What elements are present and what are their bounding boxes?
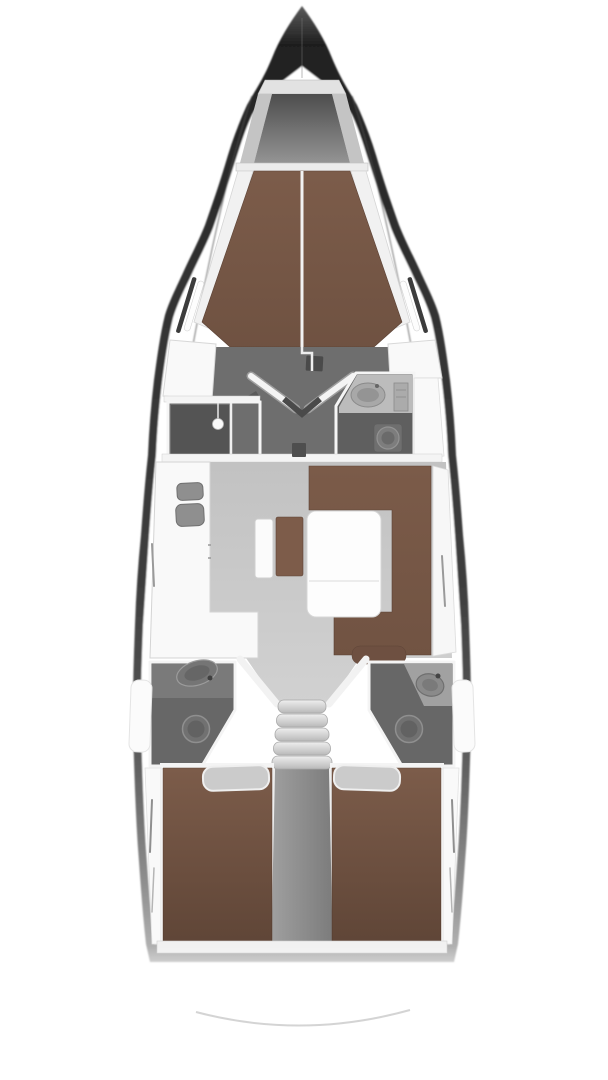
stern-fade [110, 946, 500, 1056]
locker-shelf [236, 163, 368, 171]
forward-head [336, 373, 444, 458]
galley-sink-1 [177, 482, 204, 500]
aft-head-port-faucet [208, 676, 213, 681]
deck-locker-port [129, 680, 152, 753]
bulkhead-door-notch [292, 443, 306, 457]
aft-head-starboard-faucet [436, 674, 441, 679]
aft-berth-port-shading [163, 768, 272, 944]
aft-pillow-starboard [334, 765, 401, 791]
engine-compartment [270, 760, 334, 946]
aft-head-port-toilet-bowl [188, 721, 205, 738]
center-bench-white [255, 519, 273, 578]
shower-room [168, 402, 260, 458]
companionway-steps [272, 700, 332, 769]
v-berth-center-seam [301, 171, 304, 347]
cabinet-port-forward [163, 340, 216, 400]
step-5 [272, 756, 332, 769]
deck-locker-starboard [452, 680, 476, 753]
center-bench-brown [276, 517, 303, 576]
forward-head-toilet-bowl [382, 432, 395, 445]
shower-stall-floor [171, 405, 229, 455]
forward-head-faucet [375, 384, 379, 388]
aft-head-starboard-toilet-bowl [401, 721, 418, 738]
mast-step [306, 356, 324, 372]
shower-head [213, 419, 224, 430]
step-1 [278, 700, 326, 713]
aft-berth-starboard-shading [332, 768, 441, 944]
step-4 [274, 742, 331, 755]
saloon-table [307, 511, 381, 617]
aft-pillow-port [203, 765, 270, 791]
step-2 [277, 714, 328, 727]
anchor-platform [258, 80, 346, 94]
galley-sink-2 [175, 503, 204, 526]
floor-plan [0, 0, 608, 1080]
step-3 [275, 728, 329, 741]
forward-head-sink-basin [357, 388, 379, 402]
